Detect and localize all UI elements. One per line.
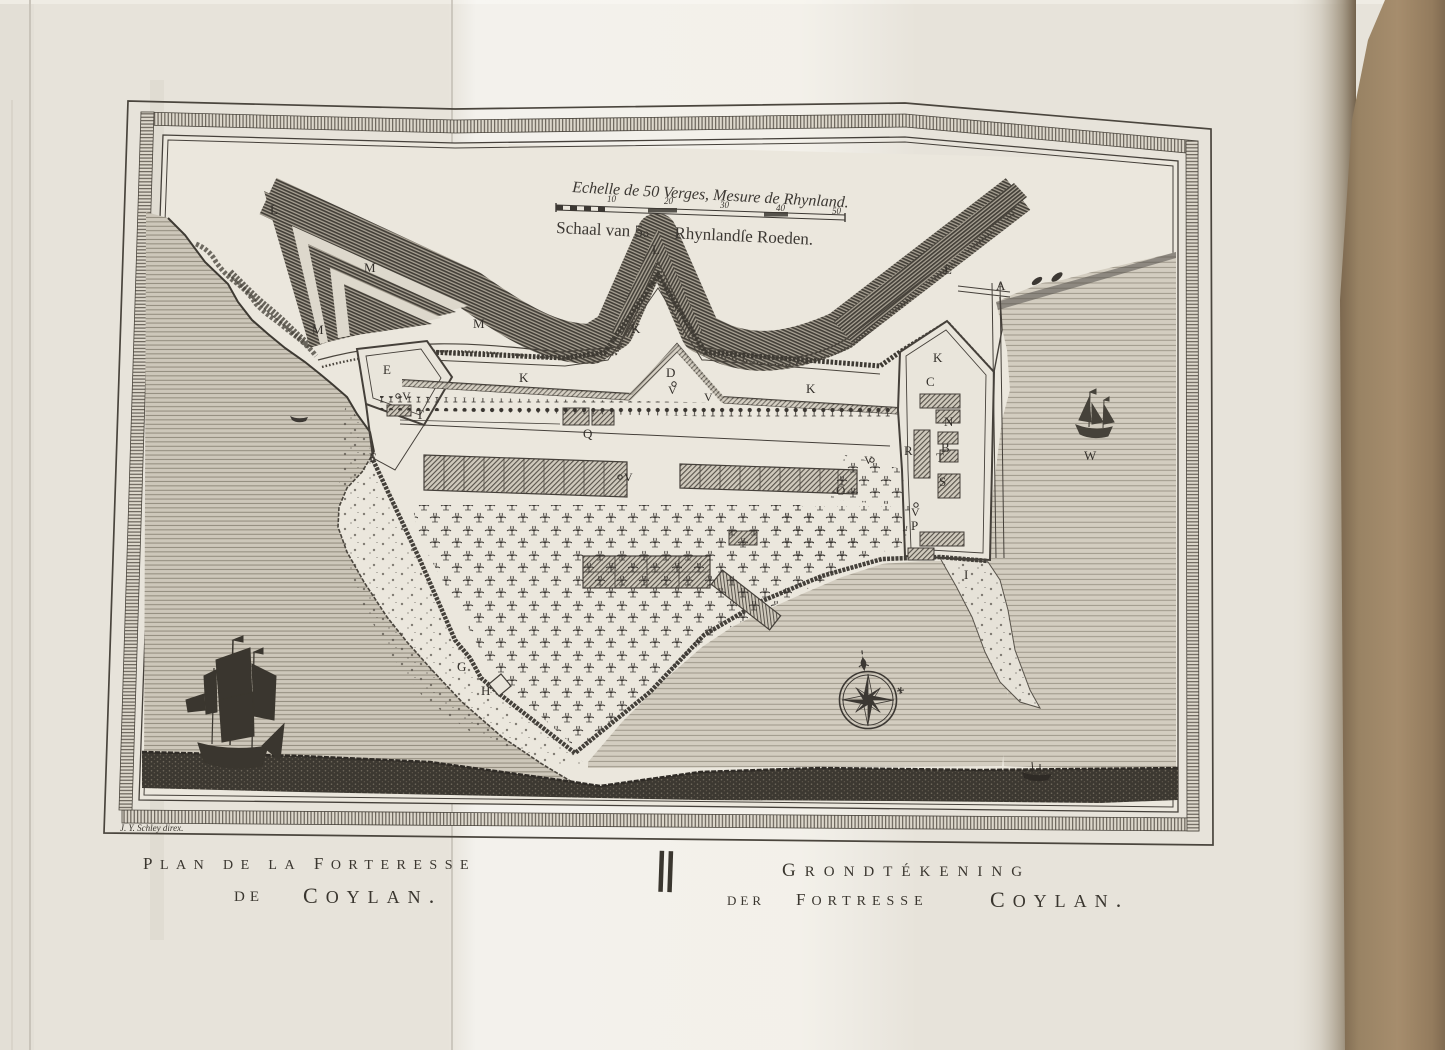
svg-text:D: D [666,365,675,380]
svg-text:L: L [652,242,660,257]
svg-text:COYLAN.: COYLAN. [303,883,442,908]
svg-text:V: V [624,470,633,484]
svg-text:DER: DER [727,893,765,908]
svg-text:M: M [312,322,324,337]
svg-text:COYLAN.: COYLAN. [990,887,1129,912]
svg-text:K: K [631,321,641,336]
svg-text:F: F [369,450,376,465]
svg-text:M: M [364,260,376,275]
svg-text:DE: DE [234,889,264,905]
svg-text:E: E [383,362,391,377]
svg-text:W: W [1084,448,1097,463]
svg-text:C: C [926,374,935,389]
svg-text:P: P [911,518,918,533]
svg-text:K: K [933,350,943,365]
svg-text:J. Y. Schley direx.: J. Y. Schley direx. [120,823,183,833]
svg-text:Q: Q [583,426,593,441]
svg-text:N: N [944,414,954,429]
svg-text:GRONDTÉKENING: GRONDTÉKENING [782,860,1031,881]
svg-text:K: K [806,381,816,396]
svg-text:L: L [270,202,278,217]
svg-text:R: R [904,443,913,458]
svg-text:S: S [939,474,946,489]
svg-text:O: O [836,483,845,498]
svg-text:L: L [944,262,952,277]
svg-text:V: V [704,390,713,404]
svg-text:V: V [864,453,873,467]
svg-text:T: T [416,407,424,422]
svg-text:V: V [402,389,411,403]
svg-text:G: G [457,659,466,674]
svg-text:M: M [473,316,485,331]
svg-text:I: I [964,567,968,582]
svg-text:A: A [996,278,1006,293]
svg-text:T: T [936,450,944,465]
svg-text:H: H [481,683,490,698]
svg-text:K: K [519,370,529,385]
